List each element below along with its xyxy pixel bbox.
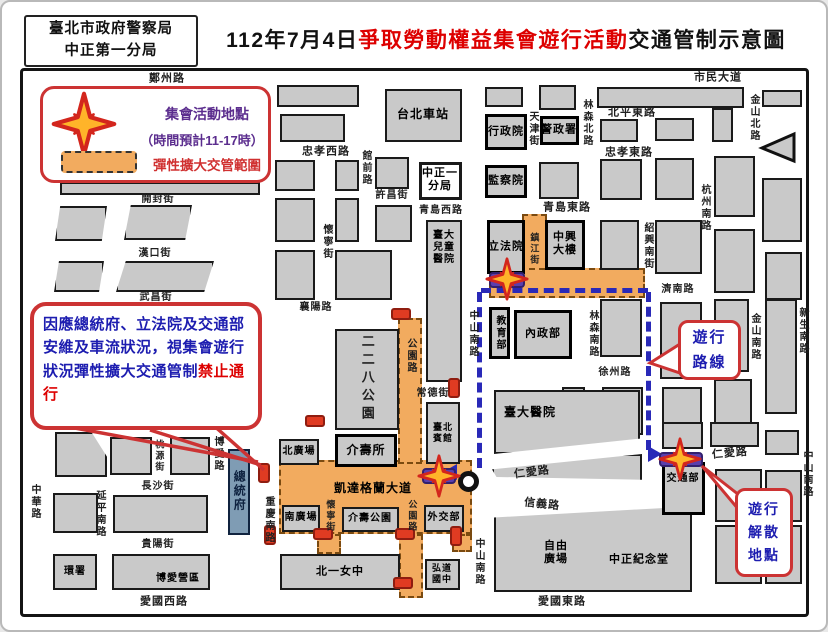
roadblock-icon (305, 415, 325, 427)
city-block (280, 114, 345, 142)
city-block (655, 158, 694, 200)
assembly-star-icon (417, 454, 461, 503)
road-label: 懷寧街 (320, 224, 332, 260)
road-label: 信義路 (523, 497, 560, 514)
city-block (485, 87, 523, 107)
road-label: 漢口街 (139, 248, 172, 260)
parade-route-callout: 遊行 路線 (678, 320, 741, 380)
road-label: 中華路 (28, 484, 40, 520)
building-label: 總統府 (232, 470, 246, 512)
building-label: 弘道國中 (430, 563, 454, 585)
road-label: 許昌街 (376, 190, 409, 202)
city-block (335, 198, 359, 242)
title-suffix: 交通管制示意圖 (628, 29, 786, 52)
city-block (113, 495, 208, 533)
city-block (765, 252, 802, 300)
city-block (275, 160, 315, 191)
building-label: 台北車站 (397, 107, 449, 121)
city-block (600, 220, 639, 270)
building-label: 博愛營區 (156, 573, 200, 585)
road-label: 忠孝東路 (605, 146, 653, 159)
city-block (275, 198, 315, 242)
city-block (655, 118, 694, 141)
building-label: 南廣場 (285, 512, 318, 524)
road-label: 館前路 (359, 150, 371, 186)
road-label: 徐州路 (599, 367, 632, 379)
road-label: 貴陽街 (142, 539, 175, 551)
city-block (539, 85, 576, 110)
building-label: 介壽公園 (348, 513, 392, 525)
city-block (714, 229, 755, 293)
legend-assembly-label: 集會活動地點 (147, 104, 267, 124)
city-block (275, 250, 315, 300)
city-block (124, 205, 192, 240)
city-block (116, 261, 214, 292)
building-label: 臺大兒童醫院 (431, 230, 457, 266)
road-label: 仁愛路 (513, 464, 550, 481)
road-label: 桃源街 (154, 440, 165, 473)
building-label: 內政部 (525, 327, 561, 340)
building-label: 自由廣場 (542, 540, 570, 566)
road-label: 常德街 (417, 388, 450, 400)
road-label: 新生南路 (796, 307, 808, 355)
road-label: 濟南路 (662, 284, 695, 296)
road-label: 青島西路 (419, 205, 463, 217)
city-block (762, 178, 802, 242)
city-block (762, 90, 802, 107)
road-label: 青島東路 (543, 201, 591, 214)
building-label: 臺大醫院 (504, 405, 556, 419)
city-block (170, 437, 210, 475)
page-title: 112年7月4日爭取勞動權益集會遊行活動交通管制示意圖 (194, 24, 818, 54)
road-label: 紹興南街 (641, 222, 653, 270)
road-label: 懷寧街 (325, 500, 336, 533)
roundabout-circle (458, 471, 479, 492)
building-label: 臺北賓館 (431, 422, 455, 444)
road-label: 中山南路 (800, 450, 812, 498)
city-block (53, 493, 98, 533)
building-label: 環署 (64, 566, 86, 578)
city-block (712, 108, 733, 142)
road-label: 延平南路 (93, 490, 105, 538)
city-block (375, 205, 412, 242)
city-block (54, 261, 104, 292)
road-label: 長沙街 (142, 481, 175, 493)
city-block (335, 250, 392, 300)
road-label: 公園路 (407, 500, 418, 533)
parade-route-line (646, 292, 651, 450)
city-block (375, 157, 409, 189)
roadblock-icon (448, 378, 460, 398)
road-label: 中山南路 (472, 538, 484, 586)
road-label: 鎮江街 (529, 233, 540, 266)
city-block (335, 160, 359, 191)
agency-line2: 中正第一分局 (65, 41, 158, 63)
city-block (55, 206, 107, 241)
building-label: 中正一分局 (420, 167, 460, 193)
road-label: 開封街 (142, 194, 175, 206)
city-block (55, 432, 107, 477)
legend-zone-label: 彈性擴大交管範圍 (143, 154, 271, 174)
city-block (765, 299, 797, 414)
traffic-control-map-page: 臺北市政府警察局 中正第一分局 112年7月4日爭取勞動權益集會遊行活動交通管制… (0, 0, 828, 632)
city-block (597, 87, 744, 108)
building-label: 二二八公園 (359, 334, 375, 424)
building-label: 北廣場 (283, 446, 316, 458)
city-block (277, 85, 359, 107)
building-label: 警政署 (541, 123, 577, 136)
road-label: 公園路 (404, 338, 416, 374)
road-label: 愛國東路 (538, 595, 586, 608)
city-block (655, 220, 702, 274)
city-block (714, 156, 755, 217)
road-label: 北平東路 (608, 106, 656, 119)
roadblock-icon (391, 308, 411, 320)
city-block (765, 430, 799, 455)
roadblock-icon (258, 463, 270, 483)
roadblock-icon (450, 526, 462, 546)
city-block (494, 390, 640, 454)
map-legend: 集會活動地點 （時間預計11-17時） 彈性擴大交管範圍 (40, 86, 271, 183)
road-label: 林森南路 (586, 310, 598, 358)
road-label: 林森北路 (580, 99, 592, 147)
road-label: 鄭州路 (149, 72, 185, 85)
city-block (600, 119, 638, 142)
road-label: 襄陽路 (300, 302, 333, 314)
assembly-star-icon (658, 437, 702, 486)
road-label: 重慶南路 (262, 496, 274, 544)
agency-box: 臺北市政府警察局 中正第一分局 (24, 15, 198, 67)
road-label: 杭州南路 (698, 184, 710, 232)
road-label: 博愛路 (211, 436, 223, 472)
city-block (110, 437, 152, 475)
building-label: 中興大樓 (551, 231, 579, 257)
road-label: 愛國西路 (140, 595, 188, 608)
control-zone-swatch-icon (61, 151, 137, 173)
building-label: 中正紀念堂 (609, 553, 669, 566)
building-label: 外交部 (428, 512, 461, 524)
building-label: 北一女中 (316, 565, 364, 578)
road-label: 天津街 (526, 111, 538, 147)
building-label: 行政院 (488, 125, 524, 138)
road-label: 中山南路 (466, 310, 478, 358)
assembly-star-icon (485, 257, 529, 306)
roadblock-icon (393, 577, 413, 589)
title-date: 112年7月4日 (226, 29, 358, 52)
city-block (539, 162, 579, 199)
dissolution-point-callout: 遊行 解散 地點 (735, 488, 793, 577)
city-block (710, 422, 759, 447)
agency-line1: 臺北市政府警察局 (49, 19, 173, 41)
building-label: 凱達格蘭大道 (334, 481, 412, 495)
building-label: 監察院 (488, 174, 524, 187)
title-event: 爭取勞動權益集會遊行活動 (358, 29, 628, 52)
road-label: 仁愛路 (711, 446, 748, 462)
city-block (600, 299, 642, 357)
building-label: 介壽所 (346, 443, 385, 457)
city-block (600, 159, 642, 200)
road-label: 市民大道 (694, 71, 742, 84)
building-label: 教育部 (493, 315, 505, 351)
traffic-notice-bubble: 因應總統府、立法院及交通部安維及車流狀況，視集會遊行狀況彈性擴大交通管制禁止通行 (30, 302, 262, 430)
road-label: 忠孝西路 (302, 145, 350, 158)
road-label: 金山北路 (747, 94, 759, 142)
building-label: 立法院 (488, 240, 524, 253)
road-label: 金山南路 (748, 313, 760, 361)
legend-time-note: （時間預計11-17時） (131, 130, 273, 149)
